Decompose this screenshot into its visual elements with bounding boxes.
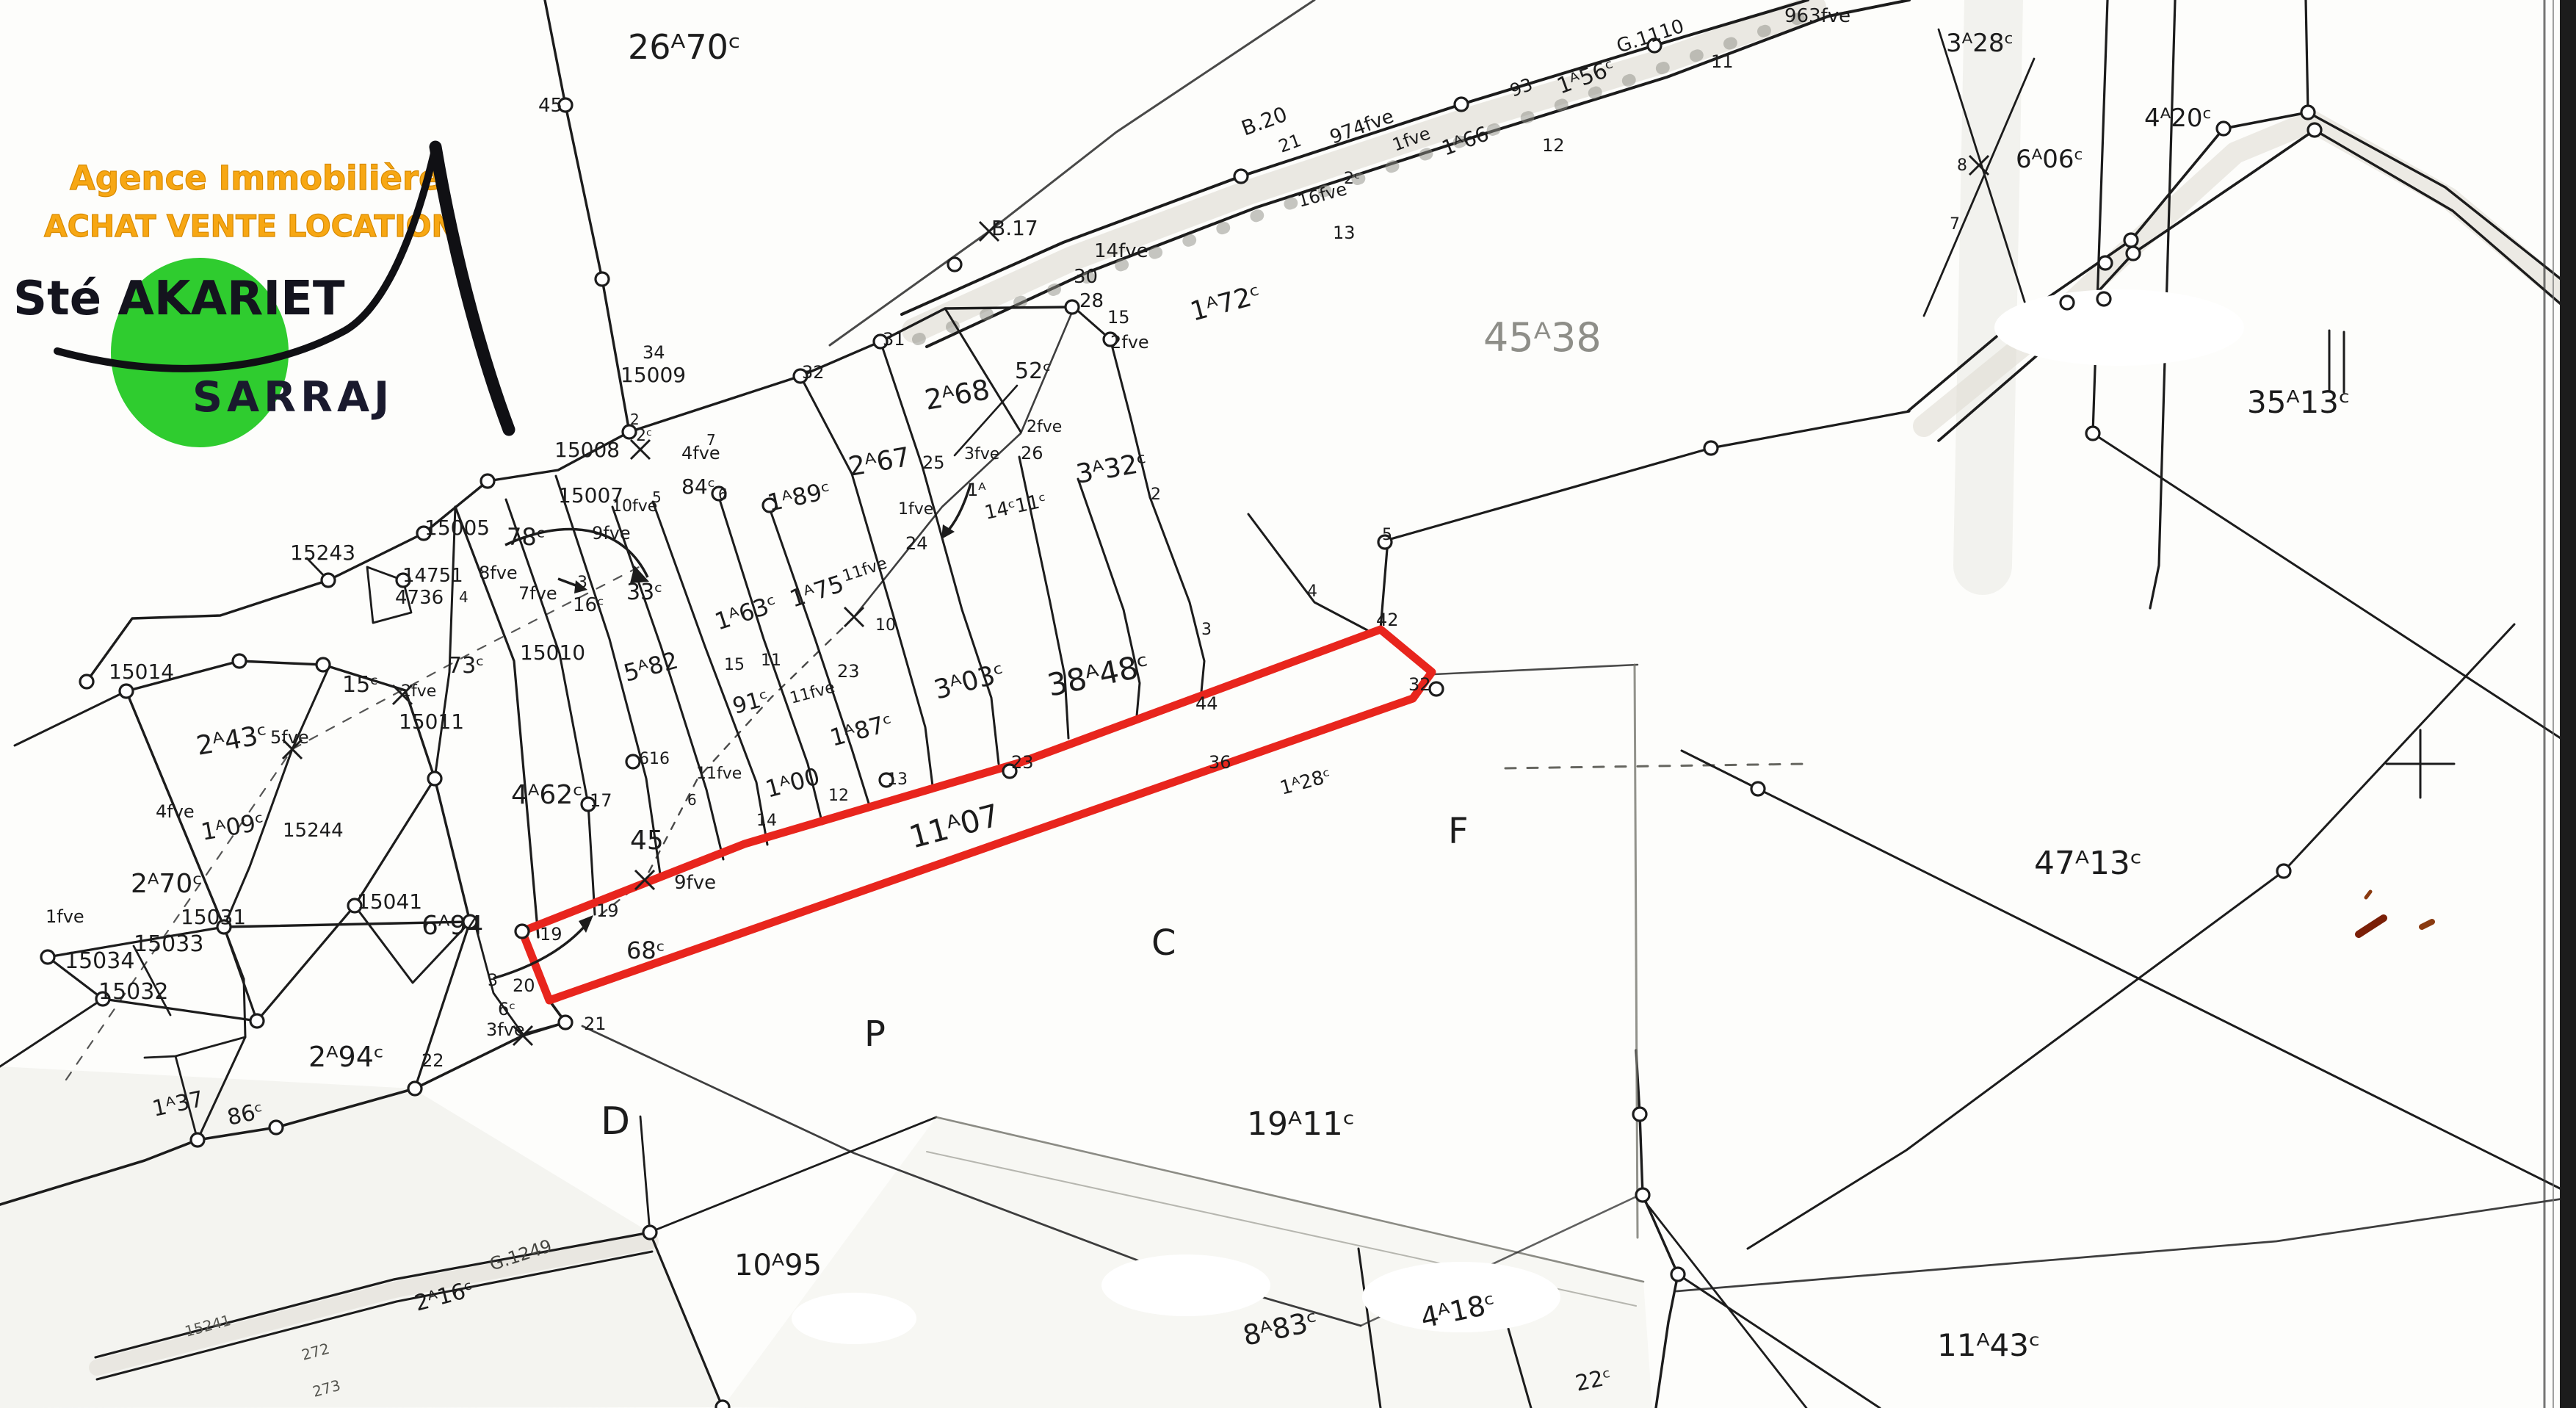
map-label: 9fve [592, 523, 631, 544]
survey-vertex [322, 574, 335, 587]
map-label: 33ᶜ [626, 580, 662, 605]
map-label: 7fve [518, 583, 557, 604]
survey-vertex [559, 1016, 572, 1029]
map-label: 10fve [612, 497, 657, 516]
survey-vertex [643, 1226, 656, 1239]
map-label: 2fve [1027, 418, 1062, 436]
map-label: 47ᴬ13ᶜ [2034, 845, 2142, 882]
map-label: 14 [756, 812, 777, 830]
map-label: 15033 [134, 931, 203, 957]
map-label: 3 [577, 574, 587, 592]
map-label: 10ᴬ95 [734, 1249, 822, 1282]
map-label: 15ᶜ [342, 672, 378, 698]
map-label: 12 [828, 787, 849, 805]
map-label: 19 [540, 924, 562, 945]
map-label: 2ᴬ94ᶜ [308, 1041, 384, 1073]
survey-vertex [1704, 441, 1718, 455]
survey-vertex [596, 272, 609, 286]
map-label: 16ᶜ [573, 594, 604, 616]
survey-vertex [80, 675, 93, 688]
map-label: C [1151, 923, 1176, 964]
map-label: 45 [538, 95, 562, 117]
survey-vertex [1633, 1108, 1646, 1121]
map-label: 15243 [290, 541, 355, 565]
map-label: 52ᶜ [1015, 358, 1051, 384]
survey-vertex [41, 950, 54, 964]
map-label: 7 [706, 431, 716, 449]
map-label: 42 [1376, 610, 1399, 630]
survey-vertex [948, 258, 961, 271]
map-label: 84ᶜ [681, 474, 715, 499]
map-label: 19ᴬ11ᶜ [1247, 1105, 1355, 1143]
map-label: 15011 [399, 710, 464, 734]
survey-vertex [2301, 106, 2315, 119]
survey-vertex [408, 1082, 422, 1095]
map-label: 17 [590, 790, 612, 811]
map-label: 3 [488, 972, 498, 990]
logo-tagline-1: Agence Immobilière [70, 159, 441, 198]
survey-vertex [1234, 170, 1248, 183]
map-label: 8fve [479, 563, 518, 583]
map-label: 68ᶜ [626, 936, 665, 964]
map-label: 11fve [696, 765, 742, 783]
map-label: 15 [724, 656, 745, 674]
map-label: 45 [630, 826, 664, 856]
map-label: 21 [584, 1014, 607, 1034]
survey-vertex [515, 925, 529, 938]
map-label: 4fve [156, 801, 195, 822]
survey-vertex [316, 658, 330, 671]
map-label: 15008 [554, 438, 620, 462]
map-label: 2 [1151, 485, 1161, 504]
survey-vertex [120, 685, 133, 698]
map-label: 25 [922, 452, 945, 473]
survey-vertex [1455, 98, 1468, 111]
survey-vertex [2097, 292, 2110, 306]
map-label: 15010 [520, 640, 585, 665]
map-label: 34 [643, 342, 665, 363]
map-label: 2ᴬ70ᶜ [131, 869, 203, 899]
scan-whiteout [1994, 289, 2244, 366]
map-label: 28 [1079, 290, 1104, 312]
map-label: 4 [1307, 582, 1317, 601]
map-label: 6ᴬ94 [422, 911, 483, 941]
survey-vertex [2124, 234, 2138, 247]
map-label: 9fve [674, 872, 716, 894]
map-label: 2ᶜ [636, 427, 652, 445]
survey-vertex [1671, 1268, 1685, 1281]
map-label: 1fve [898, 500, 933, 519]
map-label: 4 [459, 588, 468, 606]
map-label: 3fve [486, 1019, 525, 1040]
survey-vertex [1751, 782, 1765, 795]
map-label: 14751 [402, 565, 463, 587]
map-label: 8 [1957, 156, 1967, 175]
map-label: 6 [687, 791, 697, 809]
map-label: 6 [718, 485, 728, 503]
map-label: 10 [875, 616, 896, 635]
map-label: 5fve [270, 727, 309, 748]
map-label: 78ᶜ [507, 523, 546, 551]
survey-vertex [626, 755, 640, 768]
survey-vertex [191, 1133, 204, 1147]
map-label: 11 [1711, 51, 1734, 72]
map-label: 1ᴬ [967, 480, 986, 500]
cadastral-map: 26ᴬ70ᶜ45B.2021974fve1fve1ᴬ66931ᴬ56ᶜG.111… [0, 0, 2576, 1408]
map-label: 963fve [1784, 5, 1850, 27]
map-label: 22 [422, 1050, 444, 1071]
map-label: 23 [837, 661, 860, 682]
map-label: 30 [1074, 266, 1098, 288]
logo-company-name: Sté AKARIET [13, 272, 345, 326]
map-label: 1fve [46, 906, 84, 927]
map-label: 4ᴬ20ᶜ [2144, 104, 2212, 133]
map-label: 31 [883, 329, 905, 350]
logo-tagline-2: ACHAT VENTE LOCATION [44, 209, 457, 244]
map-label: 15014 [109, 660, 174, 684]
map-label: D [601, 1100, 630, 1144]
map-label: 5 [1382, 526, 1392, 544]
map-label: F [1448, 811, 1469, 852]
scan-whiteout [792, 1293, 916, 1344]
map-label: 616 [639, 750, 670, 768]
survey-vertex [428, 772, 441, 785]
map-label: 45ᴬ38 [1483, 314, 1602, 361]
map-label: 15031 [181, 905, 246, 929]
survey-vertex [481, 474, 494, 488]
map-label: 32 [1408, 674, 1431, 695]
map-label: 2 [630, 411, 640, 428]
map-label: 12 [1542, 135, 1565, 156]
survey-vertex [2099, 256, 2112, 270]
survey-vertex [2127, 247, 2140, 260]
map-label: 15 [1107, 307, 1130, 328]
map-label: 2ᶜ [1344, 170, 1360, 188]
survey-vertex [1636, 1188, 1649, 1202]
map-label: 15041 [357, 889, 422, 914]
survey-vertex [250, 1014, 264, 1028]
map-label: B.17 [991, 216, 1038, 240]
map-label: 13 [1333, 223, 1356, 243]
map-label: 73ᶜ [448, 653, 484, 679]
map-label: 4736 [395, 587, 444, 609]
map-label: 15009 [621, 363, 686, 387]
scan-whiteout [1101, 1254, 1270, 1316]
map-label: 3 [1201, 621, 1212, 639]
map-label: 3ᴬ28ᶜ [1946, 29, 2014, 58]
map-label: 14fve [1094, 240, 1148, 262]
survey-vertex [716, 1401, 729, 1408]
map-label: 4ᴬ62ᶜ [511, 780, 583, 810]
map-label: P [864, 1014, 886, 1055]
map-label: 11ᴬ43ᶜ [1937, 1327, 2041, 1363]
survey-vertex [233, 654, 246, 668]
map-label: 6ᴬ06ᶜ [2016, 145, 2083, 174]
map-label: 19 [596, 900, 619, 921]
survey-vertex [2217, 122, 2230, 135]
survey-vertex [2061, 296, 2074, 309]
map-label: 35ᴬ13ᶜ [2247, 384, 2351, 420]
map-label: 6ᶜ [498, 999, 515, 1019]
map-label: 15032 [98, 979, 168, 1005]
map-label: 36 [1209, 752, 1231, 773]
map-label: 20 [513, 975, 535, 996]
survey-vertex [1430, 682, 1443, 696]
map-label: 13 [887, 770, 908, 789]
fold-band [1983, 0, 1994, 566]
survey-vertex [2308, 123, 2321, 137]
map-label: 44 [1195, 693, 1218, 714]
map-label: 26 [1021, 443, 1043, 463]
map-label: 7 [1950, 215, 1960, 234]
logo-brand-name: SARRAJ [192, 373, 394, 422]
map-label: 3fve [964, 445, 999, 463]
map-label: 32 [802, 362, 825, 383]
map-label: 2fve [401, 682, 436, 701]
map-label: 15244 [283, 820, 344, 842]
scan-edge-border [2560, 0, 2576, 1408]
survey-vertex [2277, 864, 2290, 878]
map-label: 24 [905, 533, 928, 554]
survey-vertex [1066, 300, 1079, 314]
map-label: 23 [1011, 752, 1034, 773]
map-label: 11 [761, 651, 781, 670]
map-label: 15005 [424, 516, 490, 540]
survey-vertex [2086, 427, 2099, 440]
map-label: 15034 [65, 948, 134, 974]
survey-vertex [269, 1121, 283, 1134]
map-label: 26ᴬ70ᶜ [628, 27, 741, 67]
map-label: 5 [652, 488, 662, 506]
map-label: 2fve [1110, 332, 1149, 353]
